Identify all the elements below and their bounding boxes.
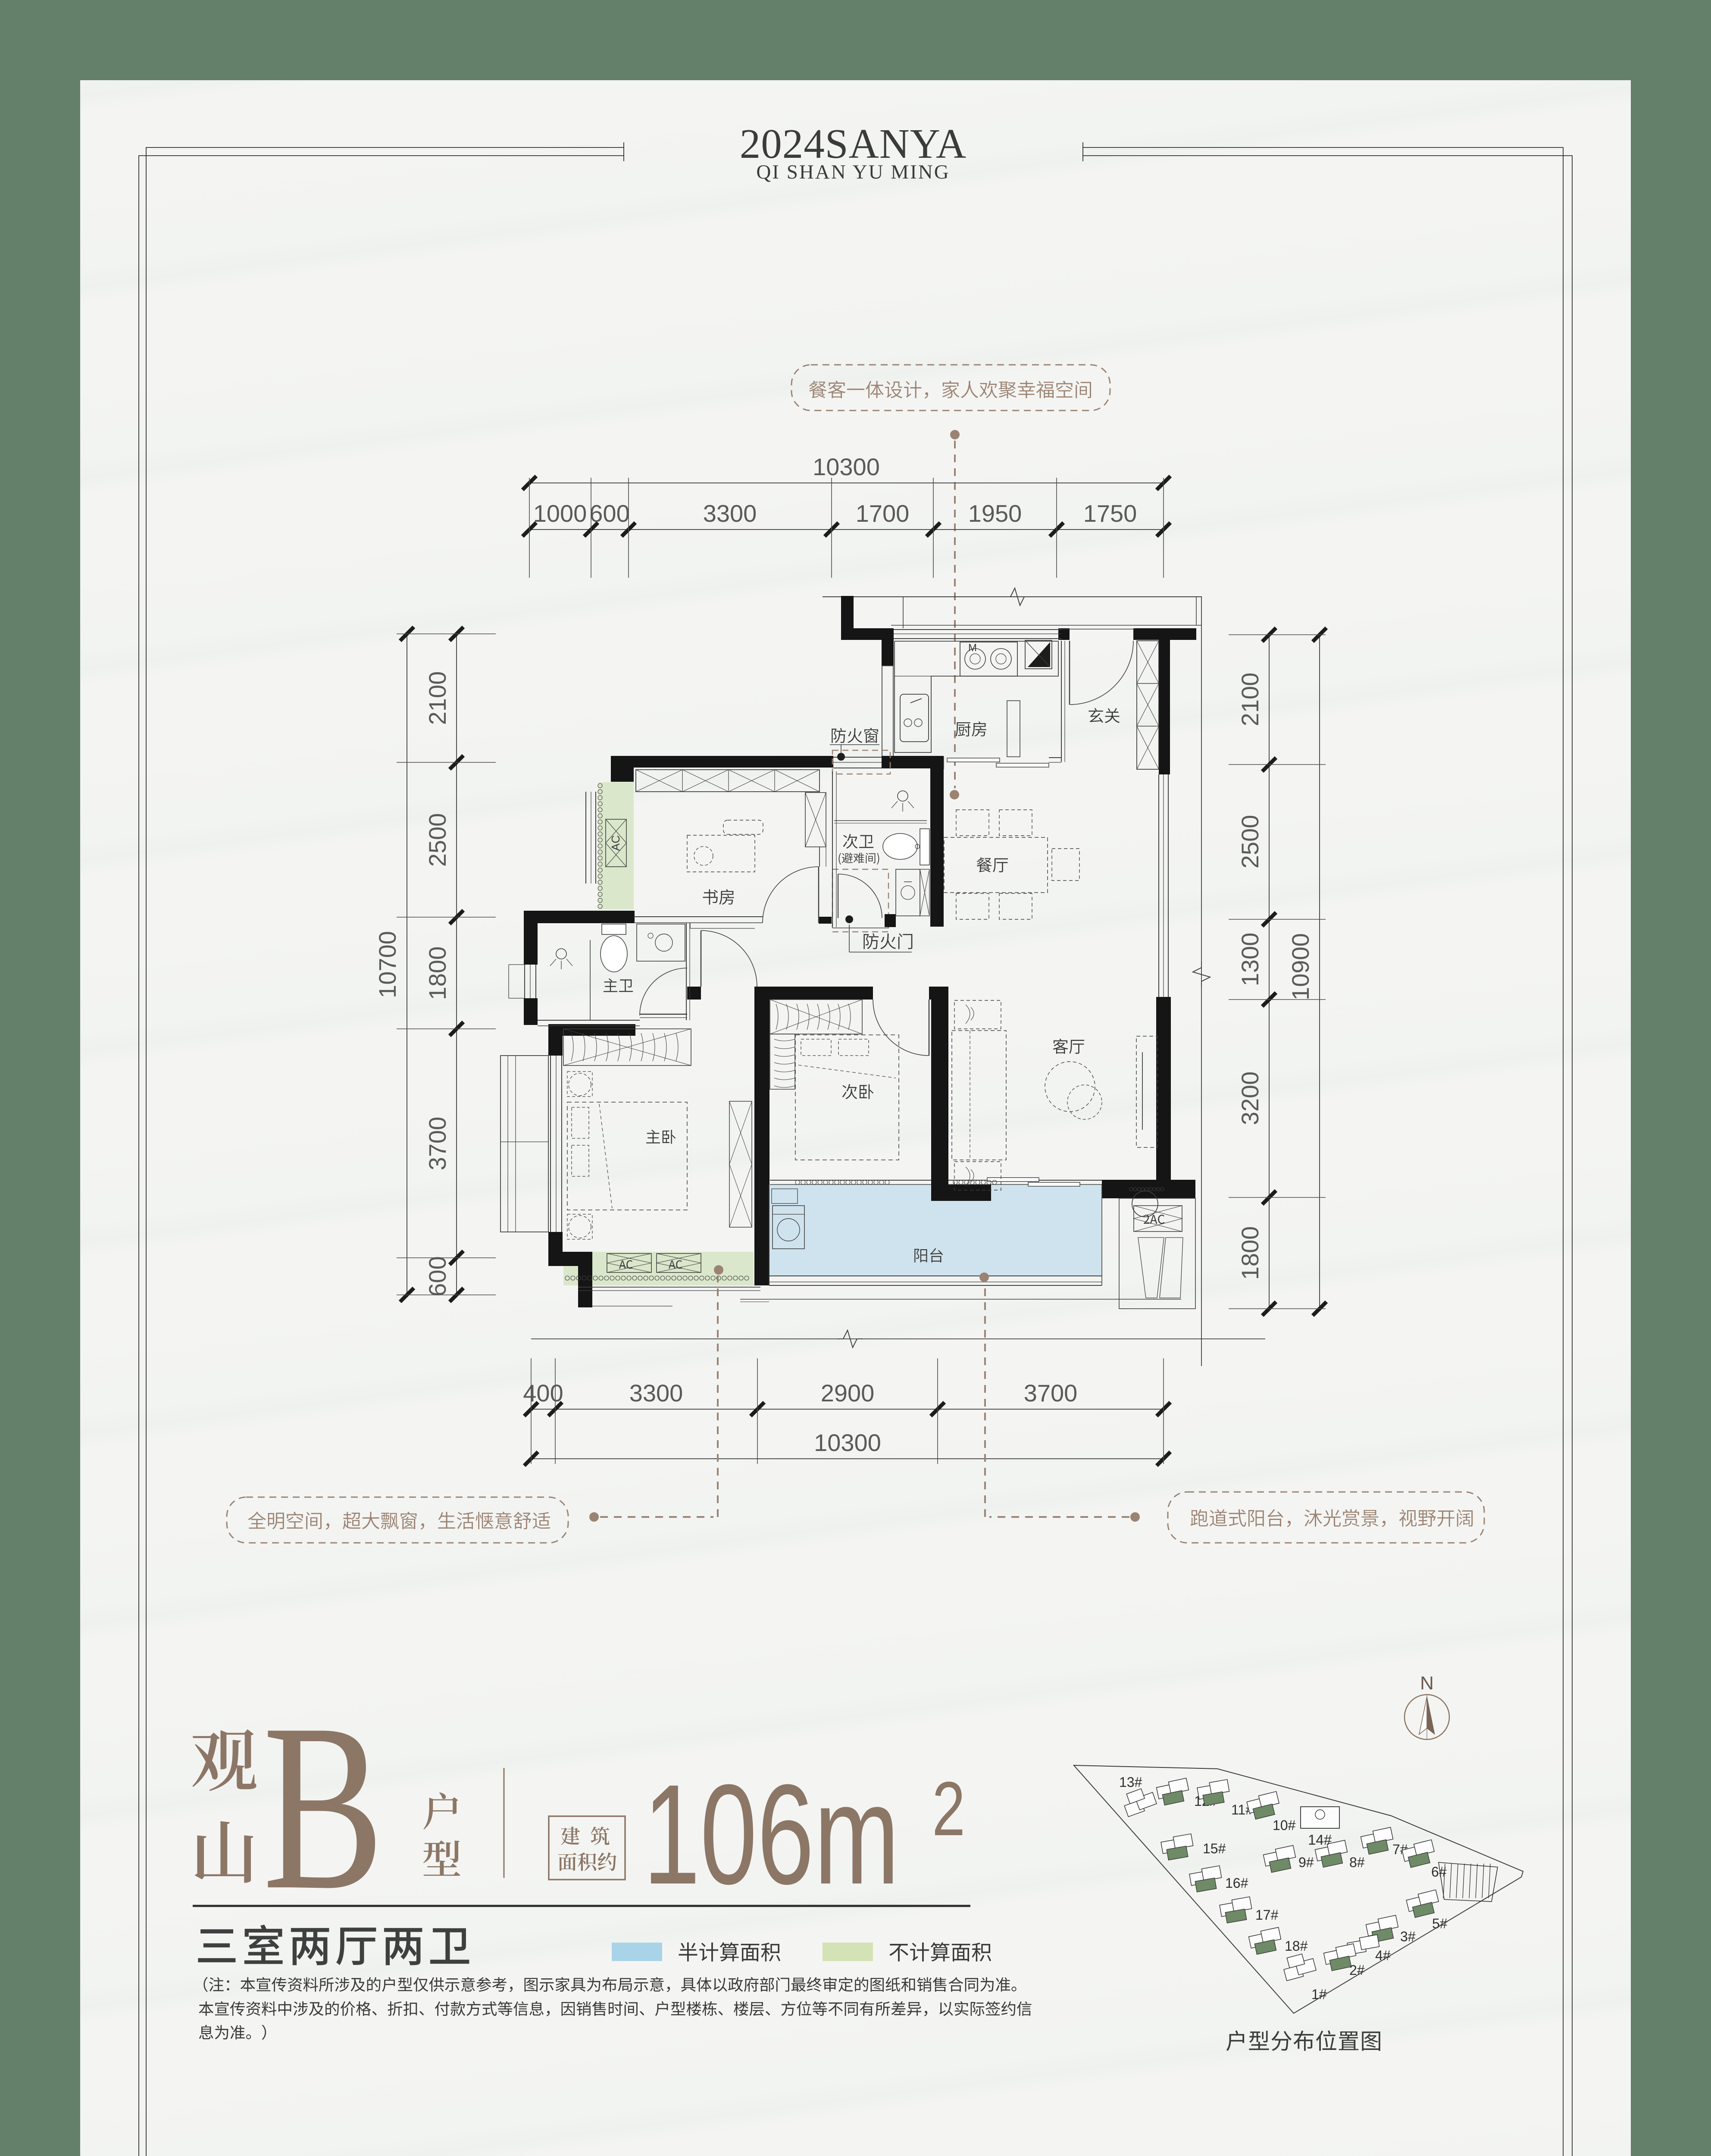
svg-text:2024SANYA: 2024SANYA [740,121,967,167]
svg-text:10700: 10700 [374,931,401,998]
svg-text:14#: 14# [1308,1832,1332,1848]
svg-text:3700: 3700 [424,1117,451,1171]
svg-text:5#: 5# [1432,1916,1448,1931]
svg-text:1700: 1700 [856,500,910,527]
svg-text:600: 600 [589,500,629,527]
svg-text:1300: 1300 [1236,933,1264,987]
svg-text:AC: AC [609,835,622,851]
svg-text:1800: 1800 [1236,1226,1264,1280]
svg-text:1750: 1750 [1083,500,1137,527]
svg-text:1000: 1000 [533,500,587,527]
svg-text:QI SHAN YU MING: QI SHAN YU MING [756,161,950,183]
svg-text:2#: 2# [1349,1962,1365,1978]
svg-text:16#: 16# [1225,1875,1248,1891]
svg-text:10900: 10900 [1287,933,1314,1000]
svg-text:1#: 1# [1311,1987,1327,2002]
svg-text:N: N [1420,1673,1434,1694]
svg-text:4#: 4# [1375,1948,1391,1963]
svg-text:M: M [968,642,977,654]
svg-text:1950: 1950 [968,500,1022,527]
svg-text:9#: 9# [1298,1855,1314,1870]
svg-text:2900: 2900 [821,1379,875,1407]
svg-text:1800: 1800 [424,946,451,1000]
svg-text:2100: 2100 [424,671,451,725]
svg-text:8#: 8# [1349,1855,1365,1870]
svg-text:2500: 2500 [1236,815,1264,869]
svg-text:106m: 106m [643,1755,899,1914]
svg-text:3300: 3300 [703,500,757,527]
svg-text:600: 600 [424,1256,451,1296]
svg-text:3300: 3300 [629,1379,683,1407]
svg-text:15#: 15# [1203,1841,1226,1856]
svg-text:10300: 10300 [813,453,880,480]
svg-text:3700: 3700 [1024,1379,1078,1407]
svg-text:18#: 18# [1285,1938,1308,1954]
svg-text:10#: 10# [1273,1818,1296,1833]
svg-text:10300: 10300 [814,1429,881,1456]
svg-text:2: 2 [932,1766,965,1851]
svg-text:2100: 2100 [1236,673,1264,727]
svg-text:400: 400 [523,1379,563,1407]
svg-text:17#: 17# [1255,1907,1279,1923]
svg-text:13#: 13# [1119,1774,1142,1790]
svg-text:2500: 2500 [424,813,451,867]
svg-text:3#: 3# [1400,1929,1416,1944]
svg-text:B: B [263,1674,384,1940]
svg-text:3200: 3200 [1236,1072,1264,1125]
